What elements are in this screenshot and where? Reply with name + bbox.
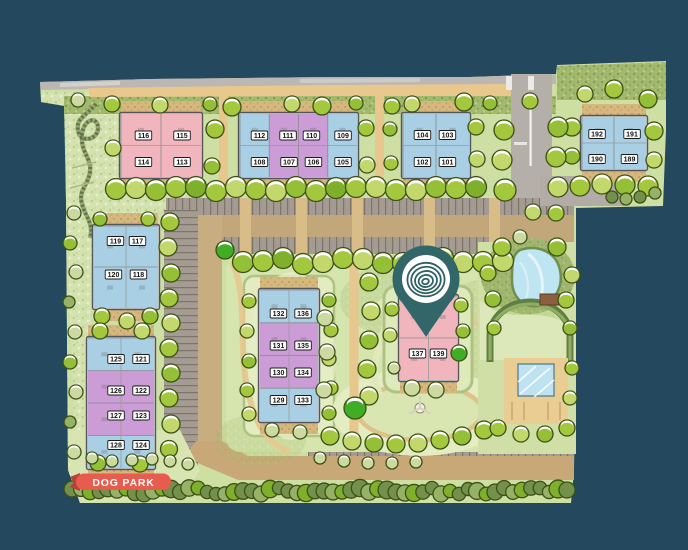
svg-text:105: 105 xyxy=(337,160,349,167)
svg-text:116: 116 xyxy=(138,133,149,140)
svg-text:117: 117 xyxy=(132,239,143,246)
svg-text:136: 136 xyxy=(297,311,309,318)
svg-text:108: 108 xyxy=(254,160,266,167)
svg-text:103: 103 xyxy=(442,133,454,140)
svg-text:128: 128 xyxy=(110,443,122,450)
svg-text:127: 127 xyxy=(110,413,122,420)
svg-text:129: 129 xyxy=(273,398,285,405)
svg-text:120: 120 xyxy=(108,272,120,279)
svg-text:106: 106 xyxy=(308,160,320,167)
svg-text:115: 115 xyxy=(176,133,187,140)
svg-text:119: 119 xyxy=(110,239,121,246)
svg-text:114: 114 xyxy=(138,160,149,167)
svg-text:101: 101 xyxy=(442,160,454,167)
svg-text:104: 104 xyxy=(417,133,429,140)
svg-text:139: 139 xyxy=(433,351,445,358)
svg-text:107: 107 xyxy=(283,160,295,167)
svg-text:110: 110 xyxy=(306,133,317,140)
svg-text:111: 111 xyxy=(283,133,294,140)
svg-text:189: 189 xyxy=(624,157,636,164)
svg-text:137: 137 xyxy=(412,351,424,358)
svg-text:132: 132 xyxy=(273,311,285,318)
svg-text:190: 190 xyxy=(591,157,603,164)
svg-text:109: 109 xyxy=(337,133,349,140)
svg-text:DOG PARK: DOG PARK xyxy=(92,477,154,489)
svg-text:130: 130 xyxy=(273,370,285,377)
svg-text:123: 123 xyxy=(135,413,147,420)
svg-text:113: 113 xyxy=(176,160,187,167)
svg-text:102: 102 xyxy=(417,160,429,167)
svg-text:125: 125 xyxy=(110,357,122,364)
svg-text:134: 134 xyxy=(297,370,309,377)
svg-text:192: 192 xyxy=(591,132,603,139)
svg-text:118: 118 xyxy=(133,272,144,279)
svg-text:135: 135 xyxy=(297,343,309,350)
svg-text:121: 121 xyxy=(135,357,147,364)
svg-text:133: 133 xyxy=(297,398,309,405)
svg-text:131: 131 xyxy=(273,343,285,350)
svg-text:126: 126 xyxy=(110,388,122,395)
svg-text:191: 191 xyxy=(626,132,638,139)
svg-text:122: 122 xyxy=(135,388,147,395)
svg-text:112: 112 xyxy=(254,133,265,140)
svg-text:124: 124 xyxy=(135,443,147,450)
